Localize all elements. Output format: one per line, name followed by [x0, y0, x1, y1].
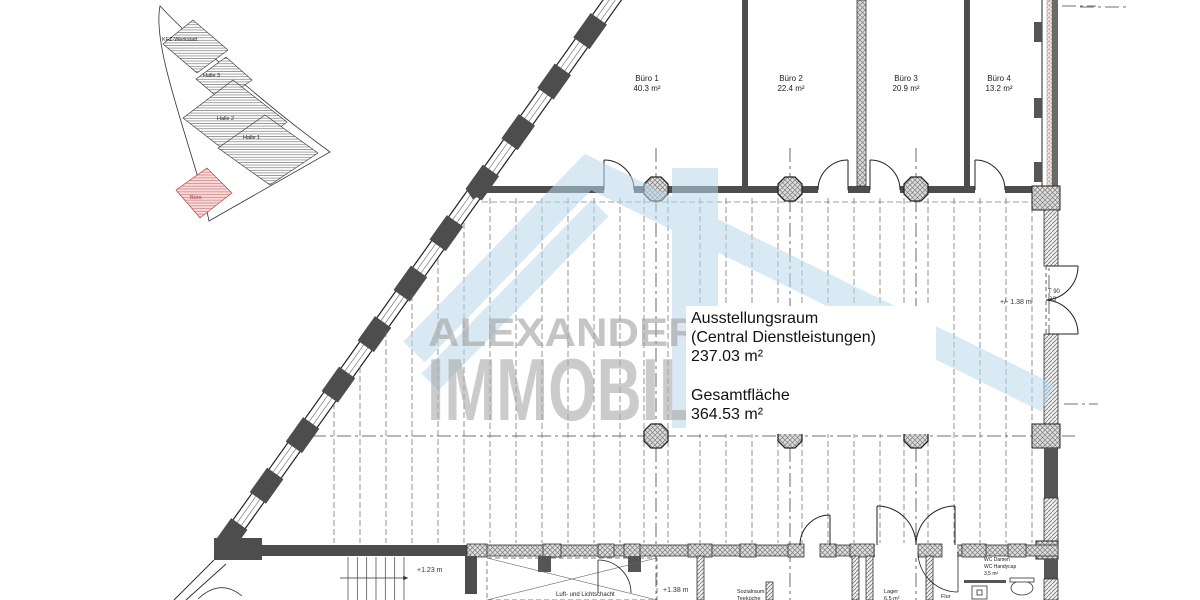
bottom-wall-pier — [962, 544, 986, 557]
bottom-wall-pier — [467, 544, 487, 557]
wall-pier-right-top — [1032, 186, 1060, 210]
label-buero4-area: 13.2 m² — [985, 84, 1012, 93]
door-arc-buero4 — [975, 160, 1005, 190]
site-plan-inset: KFZ-Werkstatt Halle 3 Halle 2 Halle 1 Bü… — [159, 6, 330, 221]
site-label-kfz: KFZ-Werkstatt — [162, 37, 198, 43]
right-wall-seg1 — [1044, 210, 1058, 266]
label-lager-1: Lager — [884, 589, 898, 595]
right-wall-insulation — [1047, 0, 1052, 186]
label-buero2-name: Büro 2 — [779, 74, 803, 83]
bottom-wall-pier — [740, 544, 756, 557]
label-flur: Flur — [941, 594, 951, 600]
bottom-wall-pier — [598, 544, 614, 557]
partition-2 — [766, 582, 773, 600]
stair-wall — [465, 556, 477, 594]
showroom-name: Ausstellungsraum — [691, 310, 818, 327]
door-arc-right-bottom — [1046, 300, 1078, 334]
right-wall-seg5 — [1044, 559, 1058, 579]
door-arc-buero3 — [870, 160, 900, 190]
level-stairs: +1.23 m — [417, 567, 443, 574]
office-walls — [466, 0, 1042, 200]
right-wall-seg2 — [1044, 334, 1058, 424]
door-arc-shaft — [598, 560, 631, 593]
door-arc-buero2 — [818, 160, 848, 190]
label-buero3-area: 20.9 m² — [892, 84, 919, 93]
column — [778, 177, 802, 201]
showroom-area: 237.03 m² — [691, 348, 764, 365]
level-right-door: +/- 1.38 m — [1000, 299, 1032, 306]
bottom-wall-pier — [820, 544, 836, 557]
toilet-seat — [977, 590, 982, 595]
area-info-box: Ausstellungsraum (Central Dienstleistung… — [686, 306, 936, 434]
wall-pier-right-mid — [1032, 424, 1060, 448]
pilaster-2 — [1034, 98, 1042, 118]
total-area-label: Gesamtfläche — [691, 387, 790, 404]
entry-door-arc — [198, 588, 242, 599]
label-wc-2: WC Handycap — [984, 564, 1016, 570]
level-shaft: +1.38 m — [663, 587, 689, 594]
bottom-wall-pier — [1008, 544, 1026, 557]
label-lager-2: 6,5 m² — [884, 596, 900, 600]
stairs — [340, 557, 408, 600]
label-buero1-area: 40.3 m² — [633, 84, 660, 93]
pilaster-3 — [1034, 162, 1042, 182]
pier-dark-2 — [628, 556, 641, 572]
door-tag-rs: RS — [1048, 297, 1056, 303]
right-wall-seg3 — [1044, 448, 1058, 498]
bottom-wall-pier — [918, 544, 942, 557]
divider-buero2-3 — [857, 0, 866, 186]
label-wc-1: WC Damen — [984, 557, 1010, 563]
partition-4 — [926, 556, 933, 600]
label-buero3-name: Büro 3 — [894, 74, 918, 83]
right-wall-seg6 — [1044, 579, 1058, 600]
bottom-wall-pier — [543, 544, 561, 557]
site-label-buero: Büro — [190, 195, 202, 201]
bottom-wall-pier — [788, 544, 804, 557]
partition-1 — [697, 556, 704, 600]
bottom-wall-pier — [624, 544, 640, 557]
wc-partition — [964, 580, 1006, 583]
right-wall-outer — [1052, 0, 1058, 186]
bottom-wall-dark — [252, 545, 467, 556]
bottom-walls — [252, 543, 1058, 600]
pilaster-1 — [1034, 22, 1042, 42]
right-wall-seg4 — [1044, 498, 1058, 545]
label-sozialraum-2: Teeküche — [737, 596, 761, 600]
partition-3a — [852, 556, 859, 600]
label-sozialraum-1: Sozialraum — [737, 589, 765, 595]
facade-inner-line — [230, 0, 649, 549]
divider-buero3-4 — [964, 0, 970, 186]
site-label-halle3: Halle 3 — [203, 73, 220, 79]
washbasin-counter — [1010, 578, 1034, 582]
column — [904, 177, 928, 201]
door-arc-bottom1 — [800, 515, 830, 545]
label-buero2-area: 22.4 m² — [777, 84, 804, 93]
label-wc-3: 3,5 m² — [984, 571, 999, 577]
label-buero4-name: Büro 4 — [987, 74, 1011, 83]
site-label-halle2: Halle 2 — [217, 116, 234, 122]
door-gap-2 — [875, 543, 957, 558]
wall-offices-3 — [848, 186, 870, 193]
floor-plan-canvas: ALEXANDER PATZER IMMOBILIEN Ausstellungs… — [0, 0, 1200, 600]
divider-buero1-2 — [742, 0, 748, 186]
label-shaft: Luft- und Lichtschacht — [556, 592, 615, 598]
site-label-halle1: Halle 1 — [243, 135, 260, 141]
floorplan-page: ALEXANDER PATZER IMMOBILIEN Ausstellungs… — [0, 0, 1200, 600]
partition-3b — [866, 556, 873, 600]
washbasin-fixture — [1011, 581, 1033, 595]
door-tag-t90: T 90 — [1048, 289, 1061, 295]
bottom-wall-pier — [850, 544, 874, 557]
door-arc-double-left — [877, 506, 916, 545]
pier-dark-1 — [538, 556, 551, 572]
bottom-wall-pier — [688, 544, 712, 557]
total-area-value: 364.53 m² — [691, 406, 764, 423]
door-arc-double-right — [916, 506, 955, 545]
label-buero1-name: Büro 1 — [635, 74, 659, 83]
showroom-subtitle: (Central Dienstleistungen) — [691, 329, 876, 346]
